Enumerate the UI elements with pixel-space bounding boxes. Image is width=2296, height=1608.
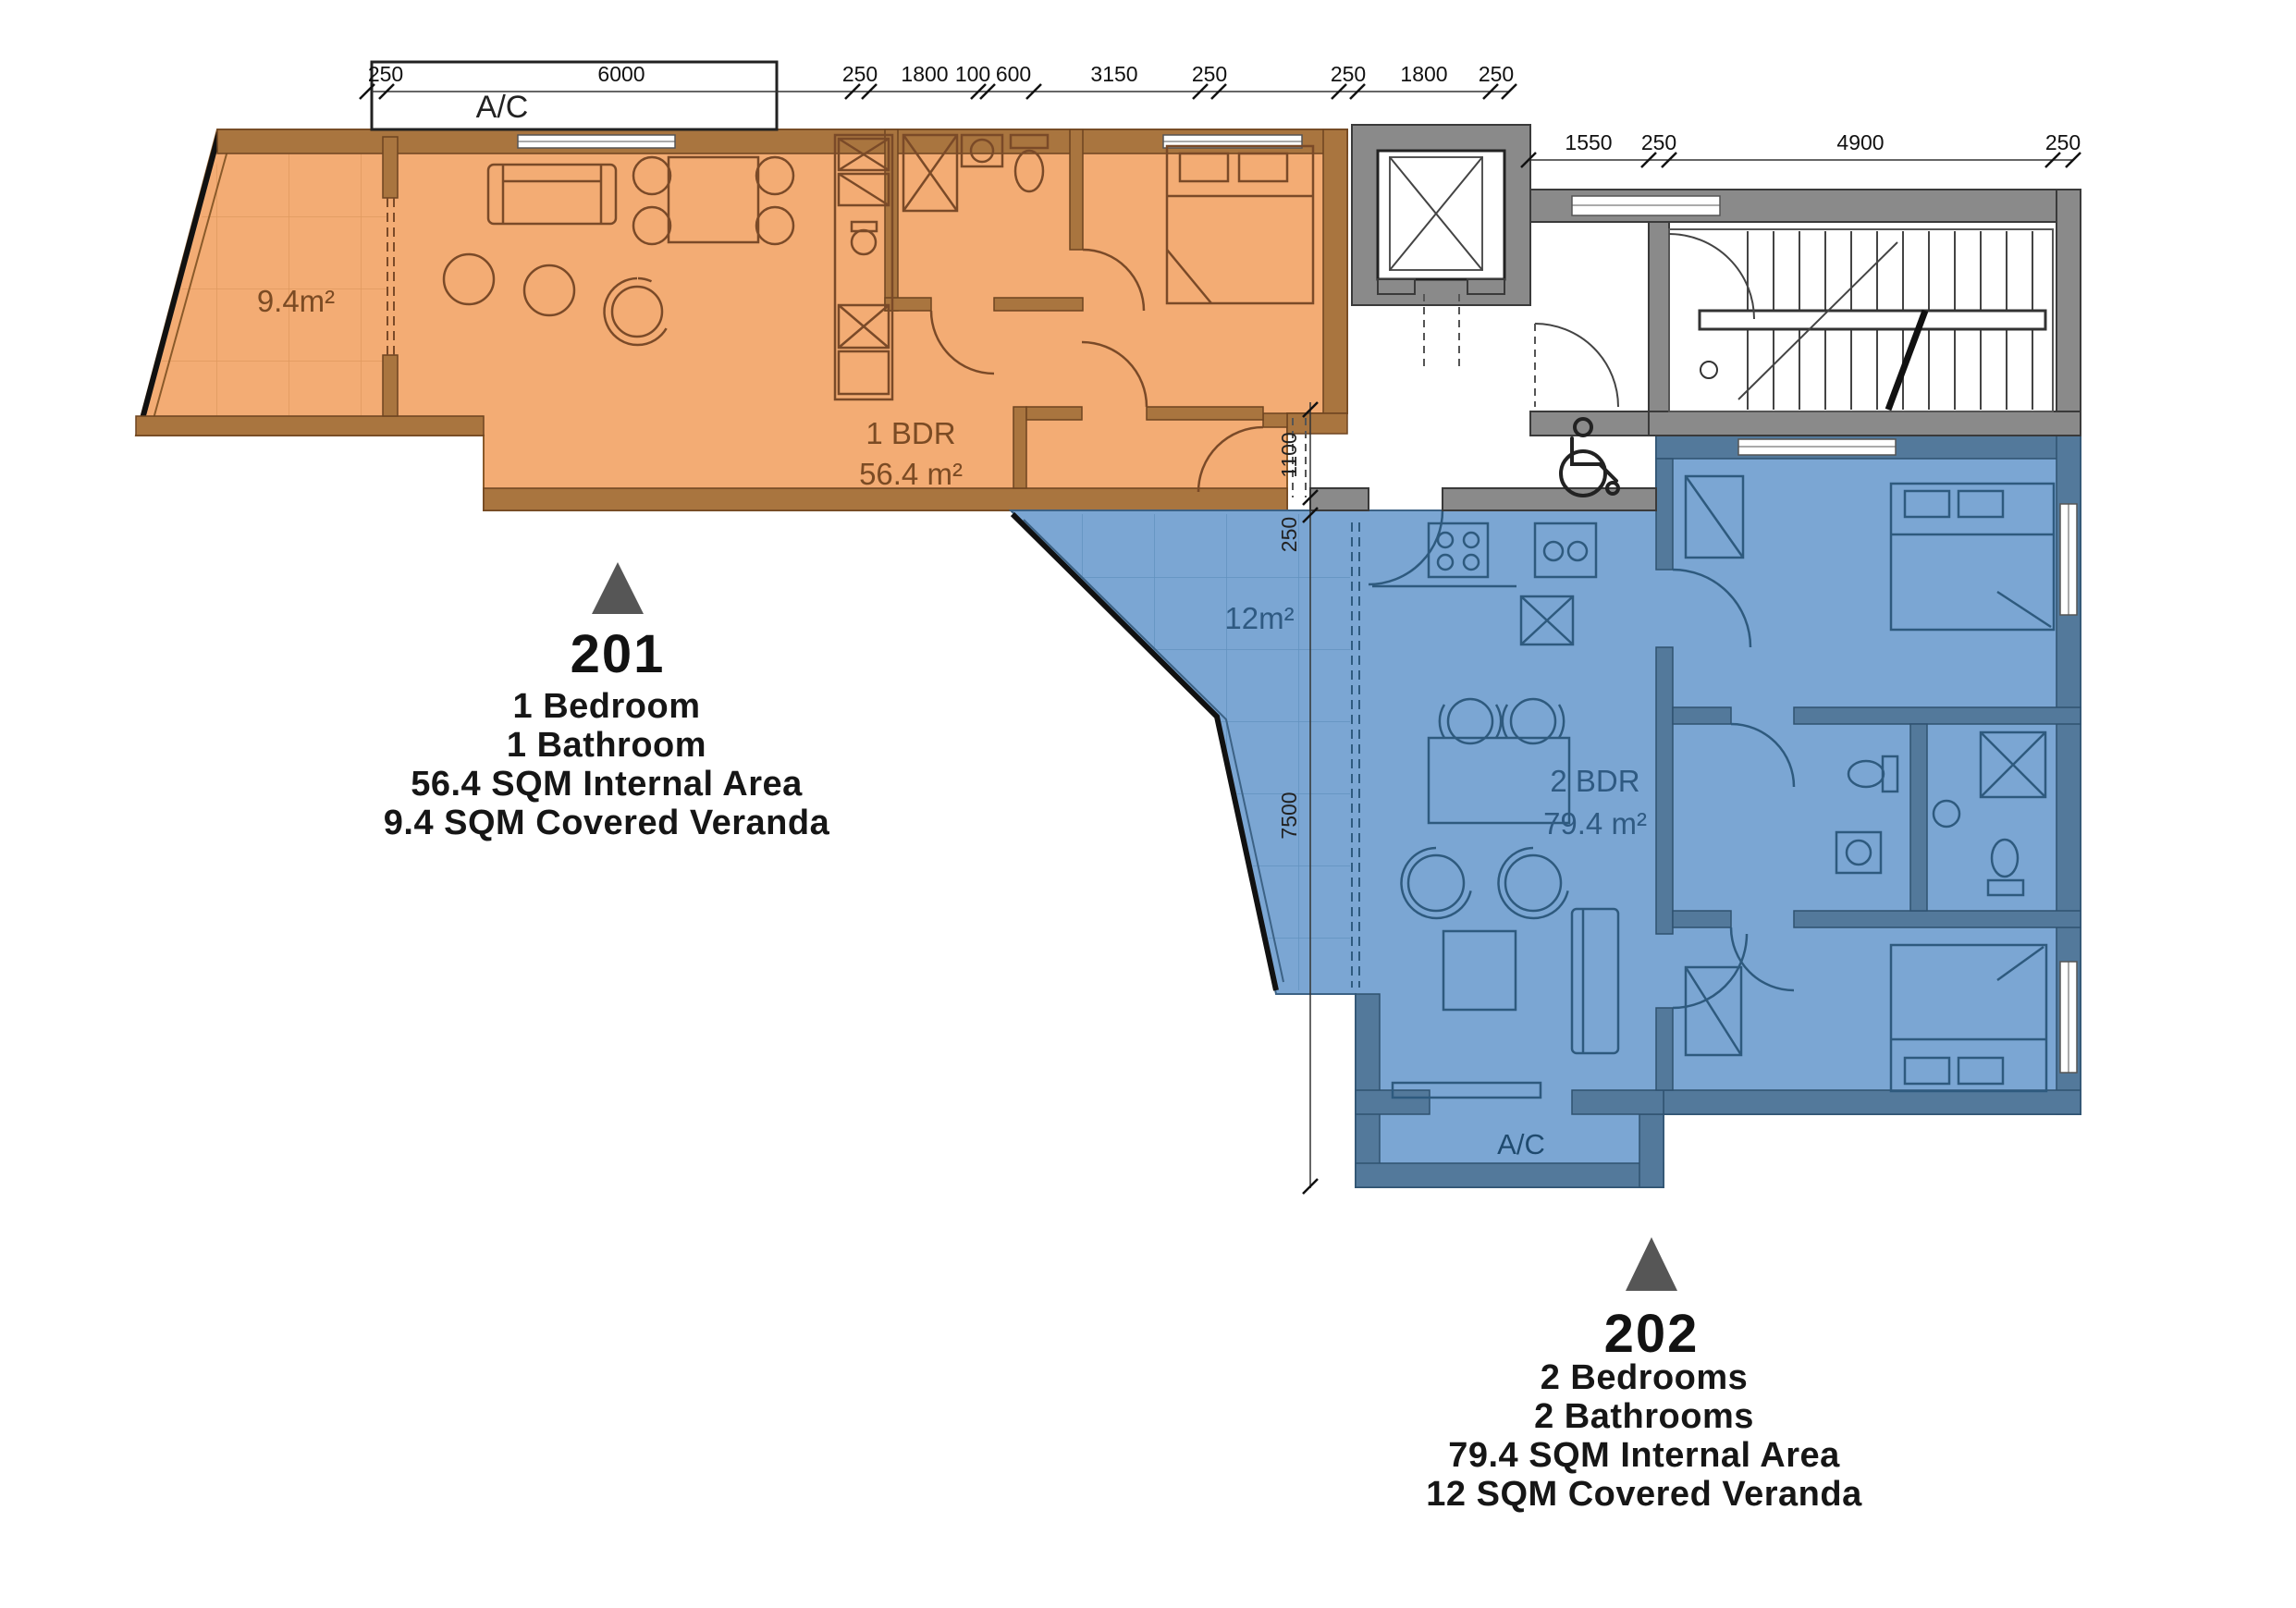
- window-202-bedroom1: [2060, 504, 2077, 615]
- dim-label: 1800: [901, 62, 948, 86]
- unit-201-plan: [136, 129, 1347, 510]
- spec-bedrooms-201: 1 Bedroom: [513, 687, 701, 726]
- window-stair: [1572, 196, 1720, 215]
- dim-label: 250: [1277, 517, 1301, 552]
- dim-label: 250: [2045, 130, 2081, 154]
- ac-label-201: A/C: [476, 90, 529, 125]
- floor-plan: A/C A/C 250 6000 250 1800 100 600 3150 2…: [0, 0, 2296, 1608]
- dim-label: 1100: [1277, 432, 1301, 477]
- room-area-202: 79.4 m²: [1543, 806, 1647, 841]
- lobby-door: [1535, 324, 1618, 407]
- dim-label: 250: [1192, 62, 1227, 86]
- spec-internal-202: 79.4 SQM Internal Area: [1448, 1436, 1840, 1475]
- spec-bathrooms-201: 1 Bathroom: [507, 726, 706, 765]
- dim-label: 4900: [1836, 130, 1884, 154]
- corridor-wall: [1310, 488, 1369, 510]
- dim-label: 1800: [1400, 62, 1447, 86]
- dim-label: 100: [955, 62, 990, 86]
- dim-label: 3150: [1090, 62, 1137, 86]
- dim-label: 600: [996, 62, 1031, 86]
- room-area-201: 56.4 m²: [859, 457, 963, 491]
- window-202-bedroom2: [2060, 962, 2077, 1073]
- staircase: [1669, 229, 2053, 411]
- dim-label: 6000: [597, 62, 645, 86]
- annotation-202: 202 2 Bedrooms 2 Bathrooms 79.4 SQM Inte…: [1426, 1237, 1862, 1514]
- marker-triangle-201: [592, 562, 644, 614]
- window-202-top: [1738, 439, 1896, 455]
- marker-triangle-202: [1626, 1237, 1677, 1291]
- unit-number-201: 201: [571, 624, 666, 684]
- annotation-201: 201 1 Bedroom 1 Bathroom 56.4 SQM Intern…: [384, 562, 830, 842]
- ac-label-202: A/C: [1497, 1128, 1545, 1160]
- spec-bedrooms-202: 2 Bedrooms: [1541, 1358, 1749, 1397]
- dimension-labels-right: 1550 250 4900 250: [1565, 130, 2081, 154]
- room-label-202: 2 BDR: [1550, 764, 1639, 798]
- unit-number-202: 202: [1604, 1304, 1700, 1364]
- dim-label: 250: [1641, 130, 1676, 154]
- veranda-area-202: 12m²: [1224, 601, 1294, 635]
- dim-label: 250: [1479, 62, 1514, 86]
- elevator: [1352, 125, 1530, 370]
- window-201-living: [518, 135, 675, 148]
- spec-veranda-201: 9.4 SQM Covered Veranda: [384, 804, 830, 842]
- dim-label: 250: [1331, 62, 1366, 86]
- room-label-201: 1 BDR: [866, 416, 955, 450]
- ac-box-top: A/C: [372, 62, 777, 129]
- dim-label: 250: [368, 62, 403, 86]
- dim-label: 250: [842, 62, 878, 86]
- dim-label: 7500: [1277, 792, 1301, 839]
- spec-bathrooms-202: 2 Bathrooms: [1534, 1397, 1754, 1436]
- spec-internal-201: 56.4 SQM Internal Area: [411, 765, 803, 804]
- unit-202-veranda: [1017, 514, 1350, 990]
- veranda-area-201: 9.4m²: [257, 284, 335, 318]
- spec-veranda-202: 12 SQM Covered Veranda: [1426, 1475, 1862, 1514]
- dim-label: 1550: [1565, 130, 1612, 154]
